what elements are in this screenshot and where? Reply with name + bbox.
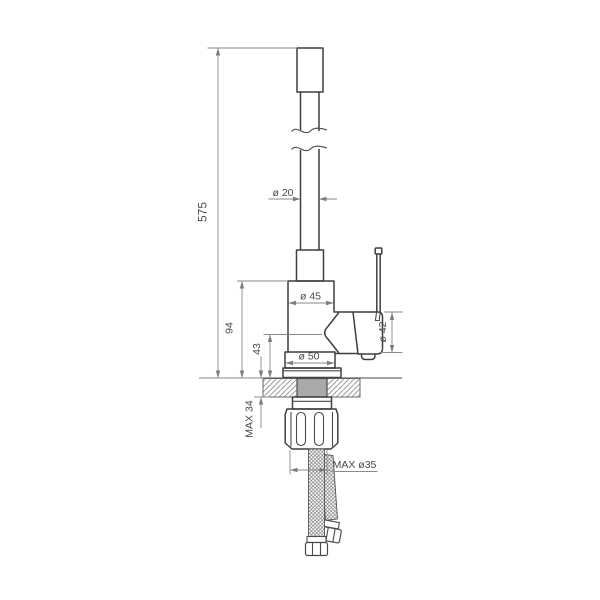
base-plate: [283, 368, 341, 378]
hose-left-connector: [306, 543, 328, 556]
hose-left: [309, 449, 325, 538]
dim-label-max-thickness: MAX 34: [244, 400, 256, 438]
dimension-lines: [208, 48, 403, 475]
dimension-labels: 575 ø 20 ø 45 94 43 ø 50 ø 42 MAX 34 MAX…: [196, 187, 390, 471]
technical-drawing-canvas: 575 ø 20 ø 45 94 43 ø 50 ø 42 MAX 34 MAX…: [0, 0, 600, 600]
dim-label-base-diameter: ø 50: [298, 351, 319, 363]
dim-label-body-height: 94: [224, 322, 236, 334]
pipe-break: [292, 128, 328, 150]
countertop-hatch-left: [263, 379, 297, 398]
dim-label-total-height: 575: [196, 202, 210, 222]
dim-label-cartridge-diameter: ø 42: [377, 321, 389, 342]
mounting-nut: [285, 409, 338, 449]
faucet-drawing-svg: 575 ø 20 ø 45 94 43 ø 50 ø 42 MAX 34 MAX…: [0, 0, 600, 600]
dim-575: [208, 48, 298, 378]
countertop-hatch-right: [327, 379, 360, 398]
spout-cone: [325, 313, 339, 353]
aerator: [362, 354, 376, 360]
handle-lever: [375, 248, 382, 321]
dim-label-pipe-diameter: ø 20: [272, 187, 293, 199]
spout-pipe: [297, 150, 324, 282]
dim-label-max-hole: MAX ø35: [333, 459, 377, 471]
spout-head: [297, 48, 323, 131]
dim-label-body-diameter: ø 45: [300, 291, 321, 303]
mounting-shank: [297, 379, 327, 398]
dim-94: [237, 281, 288, 378]
dim-label-outlet-height: 43: [251, 343, 263, 355]
faucet-body: [285, 281, 358, 368]
hose-left-collar: [307, 537, 326, 543]
